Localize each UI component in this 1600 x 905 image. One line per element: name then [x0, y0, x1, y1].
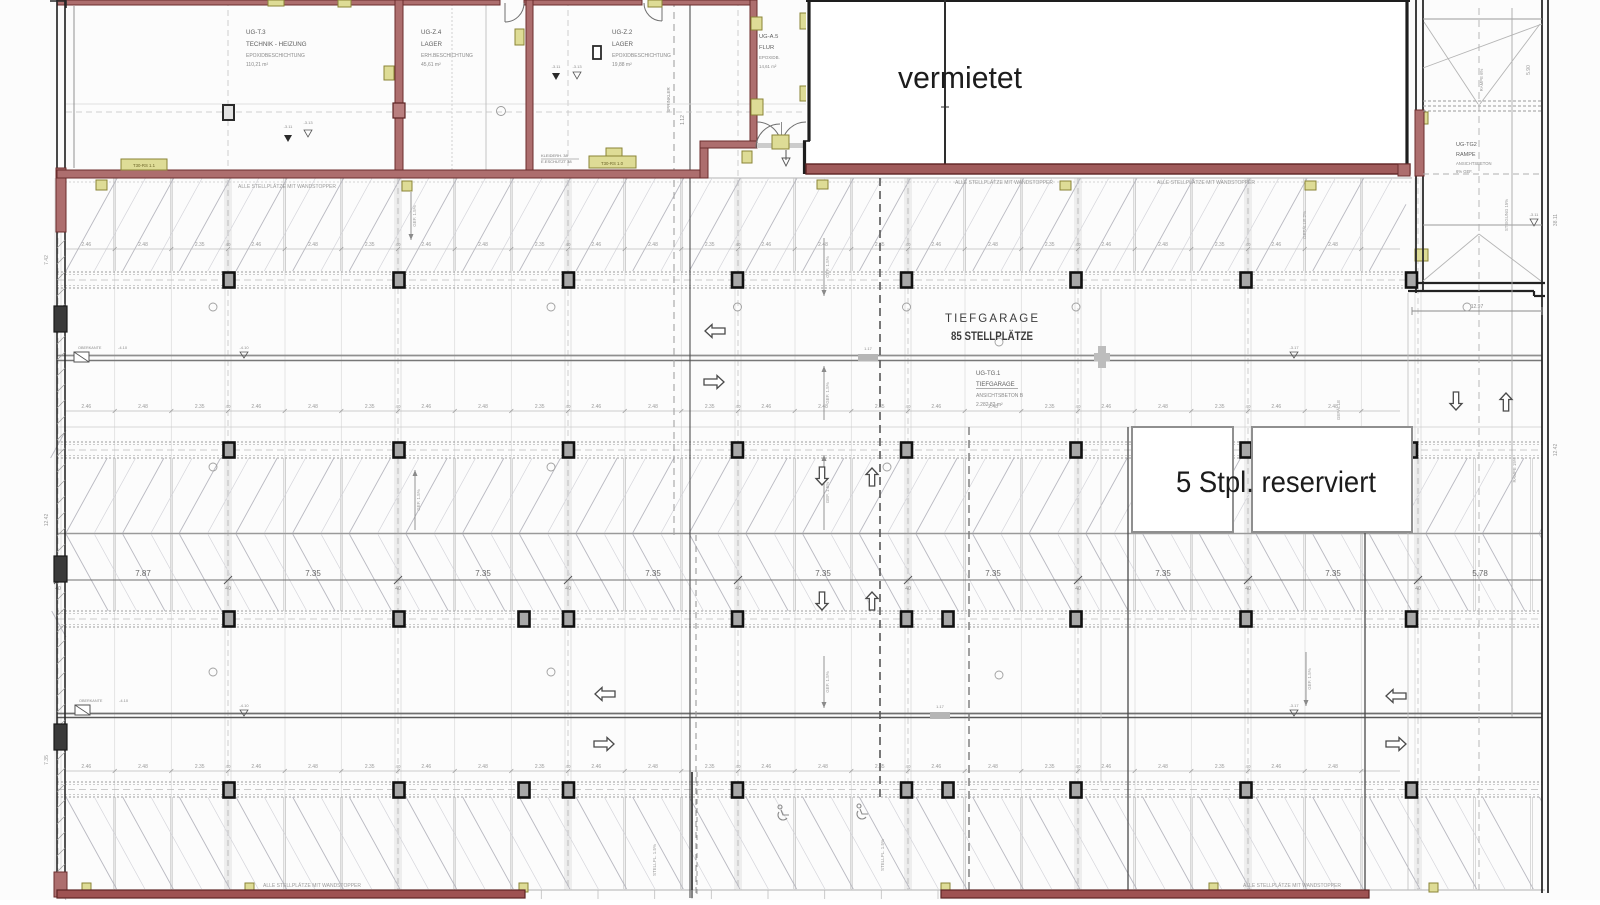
svg-text:40: 40	[1075, 764, 1081, 769]
svg-text:UG-T.3: UG-T.3	[246, 29, 266, 36]
svg-text:2.46: 2.46	[1271, 764, 1281, 770]
svg-text:110,21 m²: 110,21 m²	[246, 62, 268, 68]
svg-text:ALLE STELLPLÄTZE MIT WANDSTOPP: ALLE STELLPLÄTZE MIT WANDSTOPPER	[238, 183, 336, 190]
svg-text:40: 40	[735, 764, 741, 769]
svg-text:2.48: 2.48	[818, 242, 828, 248]
svg-text:2.46: 2.46	[931, 764, 941, 770]
svg-text:GEF. 1.5%: GEF. 1.5%	[825, 482, 830, 504]
svg-text:2.46: 2.46	[931, 242, 941, 248]
svg-text:GEF. 1.5%: GEF. 1.5%	[825, 256, 830, 278]
svg-text:vermietet: vermietet	[898, 60, 1022, 95]
svg-text:UG-Z.4: UG-Z.4	[421, 29, 442, 36]
svg-text:EPOXIDBESCHICHTUNG: EPOXIDBESCHICHTUNG	[612, 53, 671, 59]
svg-text:2.35: 2.35	[1215, 764, 1225, 770]
svg-text:40: 40	[1245, 242, 1251, 247]
svg-text:FLUR: FLUR	[759, 45, 774, 51]
svg-text:5.78: 5.78	[1472, 569, 1488, 578]
svg-text:2.46: 2.46	[251, 404, 261, 410]
svg-text:2.35: 2.35	[195, 242, 205, 248]
svg-text:2.46: 2.46	[1271, 242, 1281, 248]
svg-text:2.48: 2.48	[988, 764, 998, 770]
svg-text:2.48: 2.48	[478, 242, 488, 248]
svg-text:ALLE STELLPLÄTZE MIT WANDSTOPP: ALLE STELLPLÄTZE MIT WANDSTOPPER	[263, 882, 361, 889]
svg-text:2.46: 2.46	[421, 404, 431, 410]
svg-text:2.48: 2.48	[648, 764, 658, 770]
svg-text:GEF. 1.5%: GEF. 1.5%	[825, 671, 830, 693]
svg-text:2.46: 2.46	[1101, 764, 1111, 770]
svg-text:2.46: 2.46	[251, 764, 261, 770]
svg-text:E.ESCHUTZT 38: E.ESCHUTZT 38	[541, 159, 572, 164]
svg-text:2.46: 2.46	[931, 404, 941, 410]
svg-text:UG-A.5: UG-A.5	[759, 34, 778, 40]
svg-text:12.97: 12.97	[1471, 304, 1484, 310]
svg-text:OBERKANTE: OBERKANTE	[79, 699, 103, 703]
svg-text:2.48: 2.48	[308, 404, 318, 410]
svg-text:-3.13: -3.13	[572, 64, 582, 69]
svg-text:7.35: 7.35	[44, 755, 50, 765]
svg-text:2.48: 2.48	[988, 242, 998, 248]
svg-text:2.46: 2.46	[81, 404, 91, 410]
svg-text:-3.11: -3.11	[284, 124, 294, 129]
svg-text:2.46: 2.46	[1101, 404, 1111, 410]
svg-text:2.46: 2.46	[1271, 404, 1281, 410]
svg-text:2.35: 2.35	[705, 764, 715, 770]
svg-text:40: 40	[1245, 764, 1251, 769]
svg-text:40: 40	[395, 586, 401, 592]
svg-text:38.11: 38.11	[1553, 214, 1559, 226]
svg-text:40: 40	[1415, 586, 1421, 592]
svg-text:40: 40	[905, 242, 911, 247]
svg-text:-3.11: -3.11	[552, 64, 562, 69]
svg-text:ANSICHTSBETON: ANSICHTSBETON	[1456, 161, 1492, 166]
svg-text:2.35: 2.35	[1045, 242, 1055, 248]
svg-text:2.48: 2.48	[138, 404, 148, 410]
svg-text:7.35: 7.35	[985, 569, 1001, 578]
svg-text:12.42: 12.42	[44, 514, 50, 527]
svg-text:2.48: 2.48	[1158, 242, 1168, 248]
svg-text:ALLE STELLPLÄTZE MIT WANDSTOPP: ALLE STELLPLÄTZE MIT WANDSTOPPER	[1157, 179, 1255, 186]
svg-text:RAMPE 15%: RAMPE 15%	[1512, 457, 1517, 482]
svg-text:2.46: 2.46	[761, 242, 771, 248]
svg-text:LAGER: LAGER	[421, 41, 443, 48]
svg-text:-4.10: -4.10	[118, 345, 128, 350]
svg-text:T30-RS 1.1: T30-RS 1.1	[133, 163, 156, 168]
svg-text:ERH.BESCHICHTUNG: ERH.BESCHICHTUNG	[421, 53, 473, 59]
svg-text:T30-RS 1.0: T30-RS 1.0	[601, 161, 624, 166]
svg-text:2.46: 2.46	[251, 242, 261, 248]
svg-text:2.48: 2.48	[138, 764, 148, 770]
svg-text:-3.17: -3.17	[1289, 345, 1299, 350]
svg-text:40: 40	[735, 586, 741, 592]
svg-text:40: 40	[225, 404, 231, 409]
svg-text:ANSICHTSBETON B: ANSICHTSBETON B	[976, 393, 1024, 399]
svg-text:TIEFGARAGE: TIEFGARAGE	[945, 313, 1038, 325]
svg-text:STELLPL. 1.5%: STELLPL. 1.5%	[880, 839, 885, 871]
svg-text:40: 40	[1075, 586, 1081, 592]
svg-text:2.48: 2.48	[648, 404, 658, 410]
svg-text:GEFÄLLE 2%: GEFÄLLE 2%	[1301, 211, 1307, 239]
svg-text:7.35: 7.35	[1155, 569, 1171, 578]
svg-text:2.48: 2.48	[308, 242, 318, 248]
svg-text:2.35: 2.35	[535, 764, 545, 770]
svg-text:2.35: 2.35	[365, 764, 375, 770]
svg-text:2.48: 2.48	[138, 242, 148, 248]
svg-text:2.46: 2.46	[591, 404, 601, 410]
svg-text:EPOXIDBESCHICHTUNG: EPOXIDBESCHICHTUNG	[246, 53, 305, 59]
svg-text:GEF. 1.5%: GEF. 1.5%	[825, 382, 830, 404]
svg-text:40: 40	[1245, 586, 1251, 592]
svg-text:40: 40	[565, 242, 571, 247]
svg-text:-4.10: -4.10	[239, 345, 249, 350]
svg-text:2.35: 2.35	[365, 242, 375, 248]
svg-text:2.48: 2.48	[818, 764, 828, 770]
svg-text:-4.10: -4.10	[239, 703, 249, 708]
svg-text:2.48: 2.48	[818, 404, 828, 410]
svg-text:40: 40	[905, 586, 911, 592]
svg-text:GEF. 1.5%: GEF. 1.5%	[416, 489, 421, 511]
svg-text:2.48: 2.48	[478, 404, 488, 410]
svg-text:EPOXIDB.: EPOXIDB.	[759, 55, 780, 60]
svg-text:-3.17: -3.17	[1289, 703, 1299, 708]
svg-text:40: 40	[735, 404, 741, 409]
svg-text:40: 40	[1075, 404, 1081, 409]
svg-text:RAMPE: RAMPE	[1456, 152, 1476, 158]
svg-text:12.42: 12.42	[1553, 444, 1559, 457]
svg-text:2.35: 2.35	[535, 404, 545, 410]
svg-text:2.48: 2.48	[308, 764, 318, 770]
svg-text:GEF. 1.5%: GEF. 1.5%	[412, 205, 417, 227]
svg-text:2.35: 2.35	[1215, 404, 1225, 410]
svg-text:40: 40	[905, 764, 911, 769]
svg-text:1.12: 1.12	[680, 115, 686, 125]
svg-text:5 Stpl. reserviert: 5 Stpl. reserviert	[1176, 466, 1377, 499]
svg-text:19,88 m²: 19,88 m²	[612, 62, 632, 68]
svg-text:7.35: 7.35	[815, 569, 831, 578]
svg-text:5.90: 5.90	[1526, 65, 1532, 75]
svg-text:40: 40	[735, 242, 741, 247]
svg-text:2.48: 2.48	[478, 764, 488, 770]
svg-text:2.35: 2.35	[365, 404, 375, 410]
svg-text:2.35: 2.35	[705, 242, 715, 248]
svg-text:STELLPL. 1.5%: STELLPL. 1.5%	[652, 844, 657, 876]
svg-text:40: 40	[55, 586, 61, 592]
svg-text:2.46: 2.46	[1101, 242, 1111, 248]
svg-text:40: 40	[565, 404, 571, 409]
svg-text:OBERKANTE: OBERKANTE	[78, 346, 102, 350]
svg-text:2.46: 2.46	[761, 764, 771, 770]
svg-text:40: 40	[395, 764, 401, 769]
svg-text:40: 40	[565, 586, 571, 592]
svg-text:2.35: 2.35	[535, 242, 545, 248]
svg-text:2.48: 2.48	[1328, 764, 1338, 770]
svg-text:KLEIDERH. 38: KLEIDERH. 38	[541, 153, 568, 158]
svg-text:40: 40	[395, 404, 401, 409]
svg-text:2.46: 2.46	[81, 764, 91, 770]
svg-text:2.35: 2.35	[1215, 242, 1225, 248]
svg-text:2.46: 2.46	[591, 242, 601, 248]
svg-text:40: 40	[1075, 242, 1081, 247]
svg-text:2.48: 2.48	[648, 242, 658, 248]
svg-text:TECHNIK - HEIZUNG: TECHNIK - HEIZUNG	[246, 41, 307, 48]
svg-text:2.48: 2.48	[1328, 242, 1338, 248]
svg-text:GEF. 1.5%: GEF. 1.5%	[1307, 668, 1312, 690]
svg-text:-4.10: -4.10	[119, 698, 129, 703]
svg-text:2.48: 2.48	[1158, 764, 1168, 770]
svg-text:40: 40	[905, 404, 911, 409]
svg-text:40: 40	[225, 242, 231, 247]
svg-text:RAMPE 6%: RAMPE 6%	[1479, 68, 1484, 91]
svg-text:2.282,82 m²: 2.282,82 m²	[976, 402, 1003, 408]
svg-text:7.42: 7.42	[44, 255, 50, 265]
svg-text:2.48: 2.48	[1158, 404, 1168, 410]
svg-text:85 STELLPLÄTZE: 85 STELLPLÄTZE	[951, 328, 1033, 343]
svg-text:40: 40	[395, 242, 401, 247]
svg-text:2.46: 2.46	[591, 764, 601, 770]
svg-text:GEFÄLLE: GEFÄLLE	[1335, 400, 1341, 420]
svg-text:2.46: 2.46	[421, 242, 431, 248]
svg-text:7.35: 7.35	[475, 569, 491, 578]
svg-text:7.35: 7.35	[1325, 569, 1341, 578]
svg-text:1.17: 1.17	[864, 346, 873, 351]
svg-text:UG-Z.2: UG-Z.2	[612, 29, 633, 36]
svg-text:SPRINKLER: SPRINKLER	[666, 86, 671, 112]
svg-text:40: 40	[565, 764, 571, 769]
svg-text:6% GEF.: 6% GEF.	[1456, 169, 1473, 174]
svg-text:ALLE STELLPLÄTZE MIT WANDSTOPP: ALLE STELLPLÄTZE MIT WANDSTOPPER	[955, 179, 1053, 186]
svg-text:7.35: 7.35	[305, 569, 321, 578]
svg-text:TIEFGARAGE: TIEFGARAGE	[976, 382, 1015, 388]
svg-text:2.46: 2.46	[761, 404, 771, 410]
svg-text:40: 40	[225, 586, 231, 592]
svg-text:14,61 m²: 14,61 m²	[759, 64, 777, 69]
svg-text:2.46: 2.46	[81, 242, 91, 248]
svg-text:40: 40	[1245, 404, 1251, 409]
svg-text:-3.13: -3.13	[303, 120, 313, 125]
svg-text:7.87: 7.87	[135, 569, 151, 578]
svg-text:40: 40	[225, 764, 231, 769]
svg-text:UG-TG.1: UG-TG.1	[976, 371, 1001, 377]
svg-text:45,61 m²: 45,61 m²	[421, 62, 441, 68]
svg-text:2.35: 2.35	[1045, 404, 1055, 410]
svg-text:-3.11: -3.11	[1530, 212, 1540, 217]
svg-text:ALLE STELLPLÄTZE MIT WANDSTOPP: ALLE STELLPLÄTZE MIT WANDSTOPPER	[1243, 882, 1341, 889]
svg-text:STEIGUNG 15%: STEIGUNG 15%	[1504, 199, 1509, 231]
svg-text:UG-TG2: UG-TG2	[1456, 142, 1477, 148]
svg-text:2.46: 2.46	[421, 764, 431, 770]
svg-text:LAGER: LAGER	[612, 41, 634, 48]
svg-text:2.35: 2.35	[195, 764, 205, 770]
svg-text:1.17: 1.17	[936, 704, 945, 709]
svg-text:2.35: 2.35	[705, 404, 715, 410]
svg-text:2.35: 2.35	[195, 404, 205, 410]
svg-text:7.35: 7.35	[645, 569, 661, 578]
svg-text:2.35: 2.35	[1045, 764, 1055, 770]
